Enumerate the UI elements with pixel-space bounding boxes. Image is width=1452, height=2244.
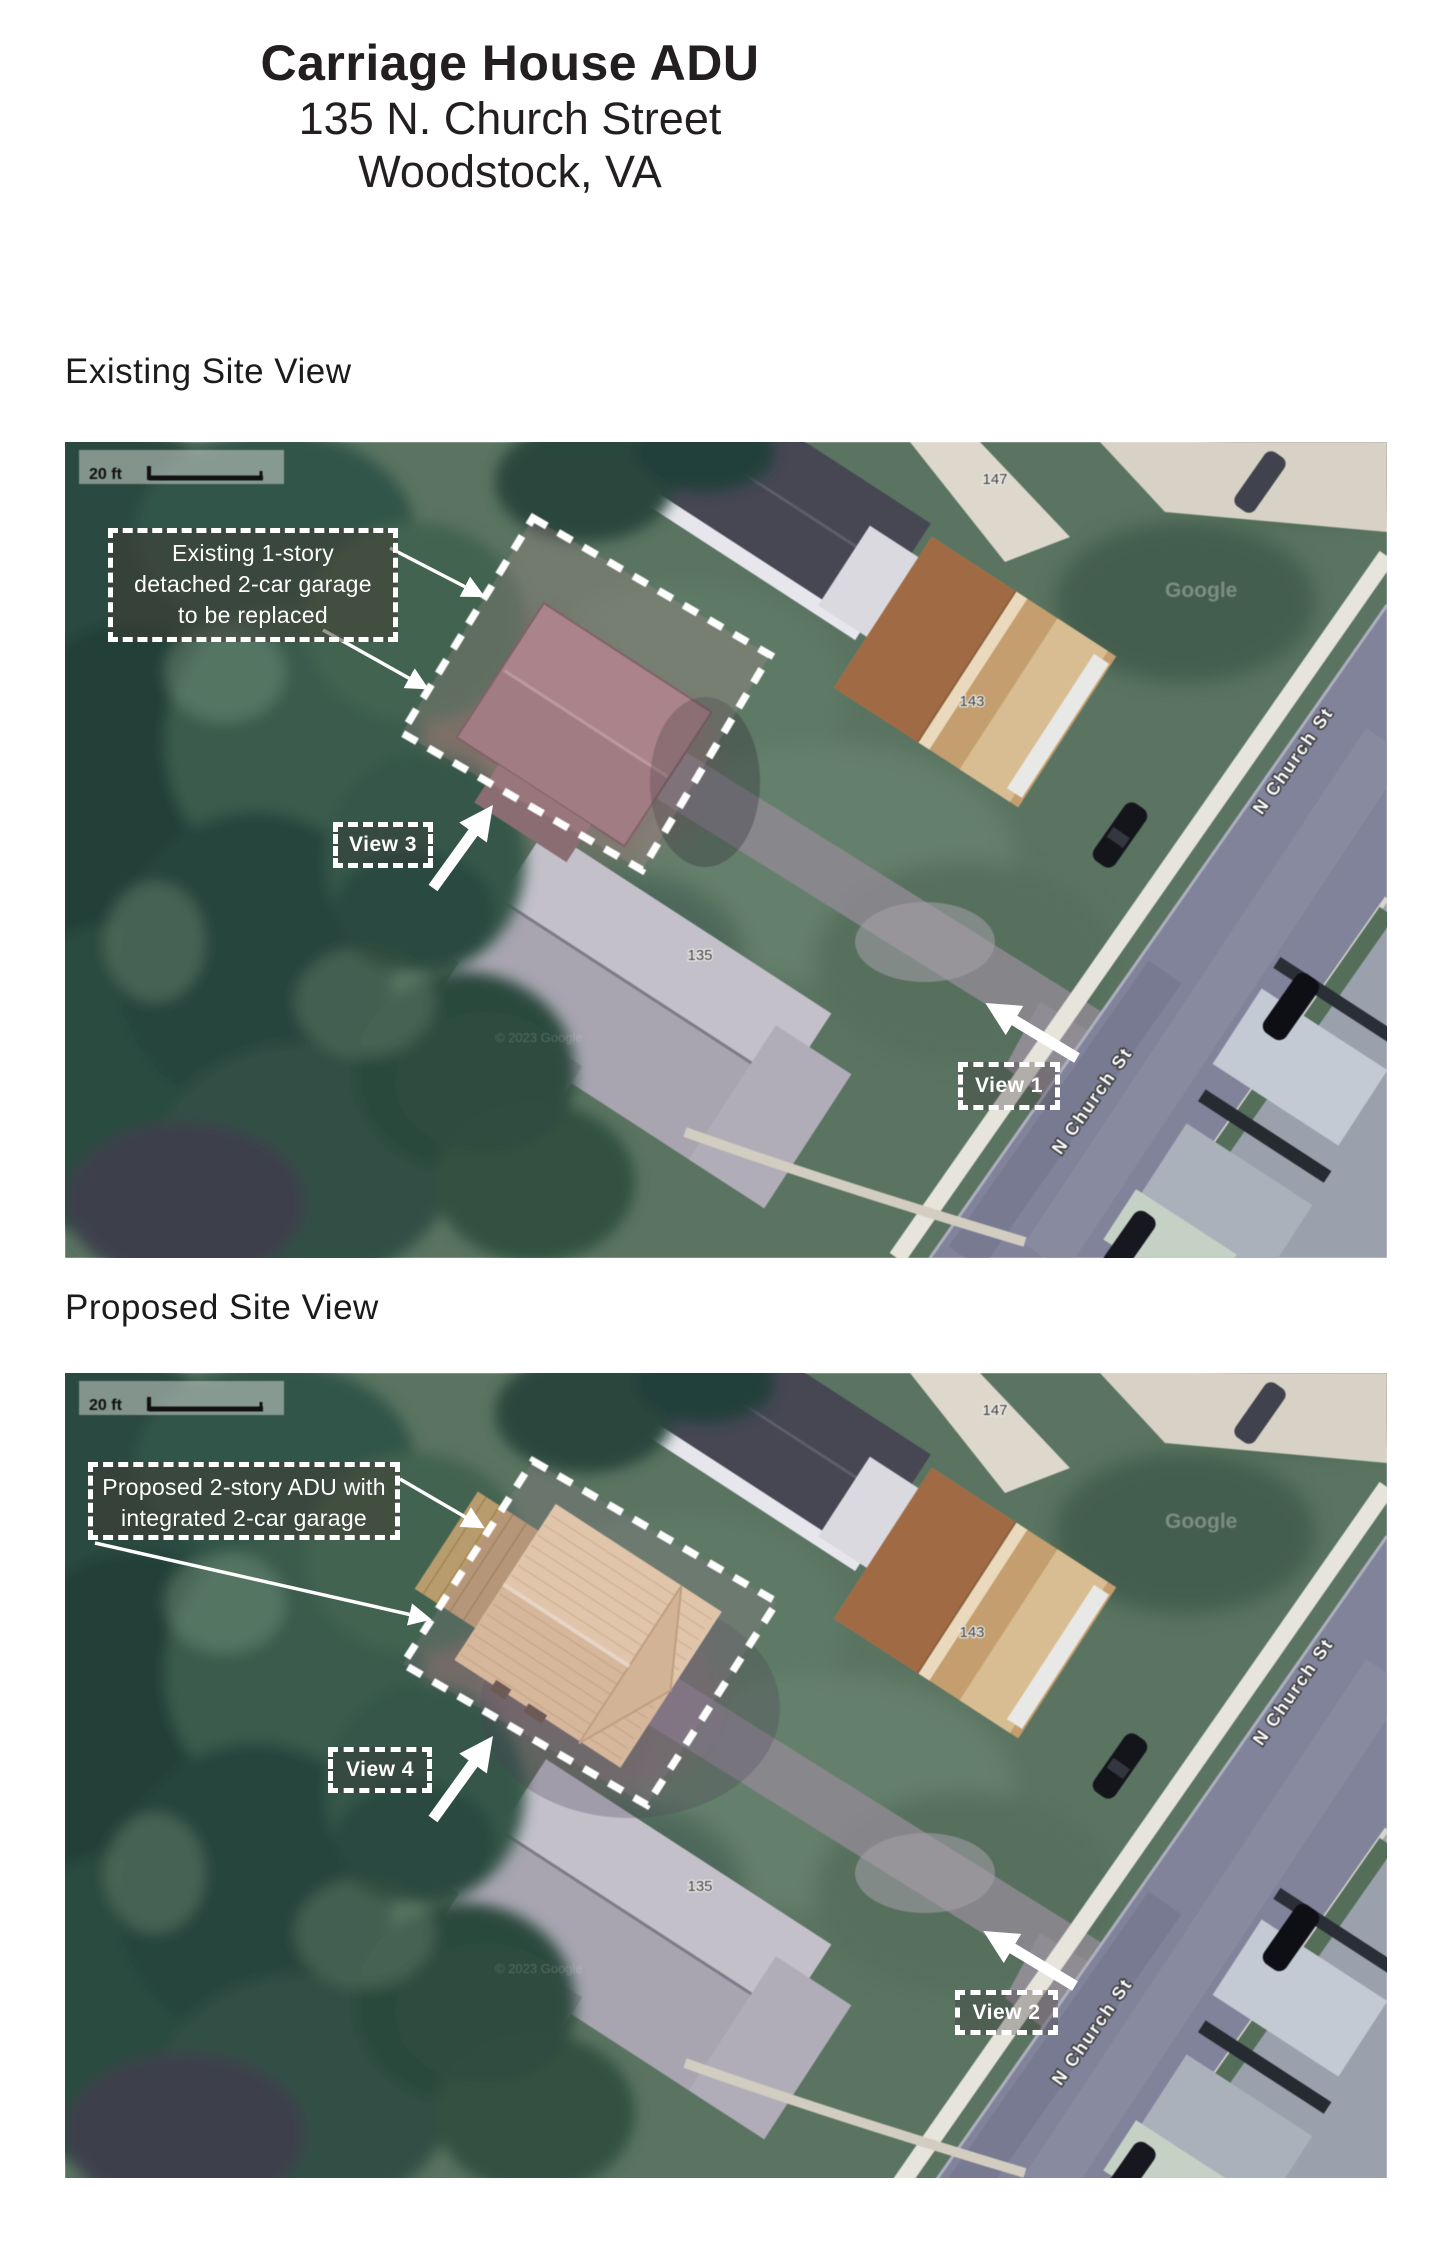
existing-garage-callout: Existing 1-story detached 2-car garage t…: [108, 528, 398, 642]
view4-tag: View 4: [328, 1747, 432, 1793]
view1-tag: View 1: [958, 1062, 1060, 1110]
proposed-adu-callout: Proposed 2-story ADU with integrated 2-c…: [88, 1462, 400, 1540]
document-title: Carriage House ADU: [0, 34, 1020, 92]
address-line-1: 135 N. Church Street: [0, 92, 1020, 145]
title-block: Carriage House ADU 135 N. Church Street …: [0, 34, 1020, 198]
document-page: 147 143 135 N Church St N Church St Goog…: [0, 0, 1452, 2244]
view2-tag: View 2: [955, 1990, 1058, 2035]
callout-line: to be replaced: [113, 600, 393, 631]
view3-tag: View 3: [333, 822, 433, 868]
proposed-site-aerial-map: Proposed 2-story ADU with integrated 2-c…: [65, 1373, 1387, 2178]
callout-line: Existing 1-story: [113, 538, 393, 569]
existing-section-heading: Existing Site View: [65, 352, 352, 392]
callout-line: Proposed 2-story ADU with: [93, 1472, 395, 1503]
proposed-section-heading: Proposed Site View: [65, 1288, 379, 1328]
address-line-2: Woodstock, VA: [0, 145, 1020, 198]
callout-line: detached 2-car garage: [113, 569, 393, 600]
existing-site-aerial-map: Existing 1-story detached 2-car garage t…: [65, 442, 1387, 1258]
callout-line: integrated 2-car garage: [93, 1503, 395, 1534]
